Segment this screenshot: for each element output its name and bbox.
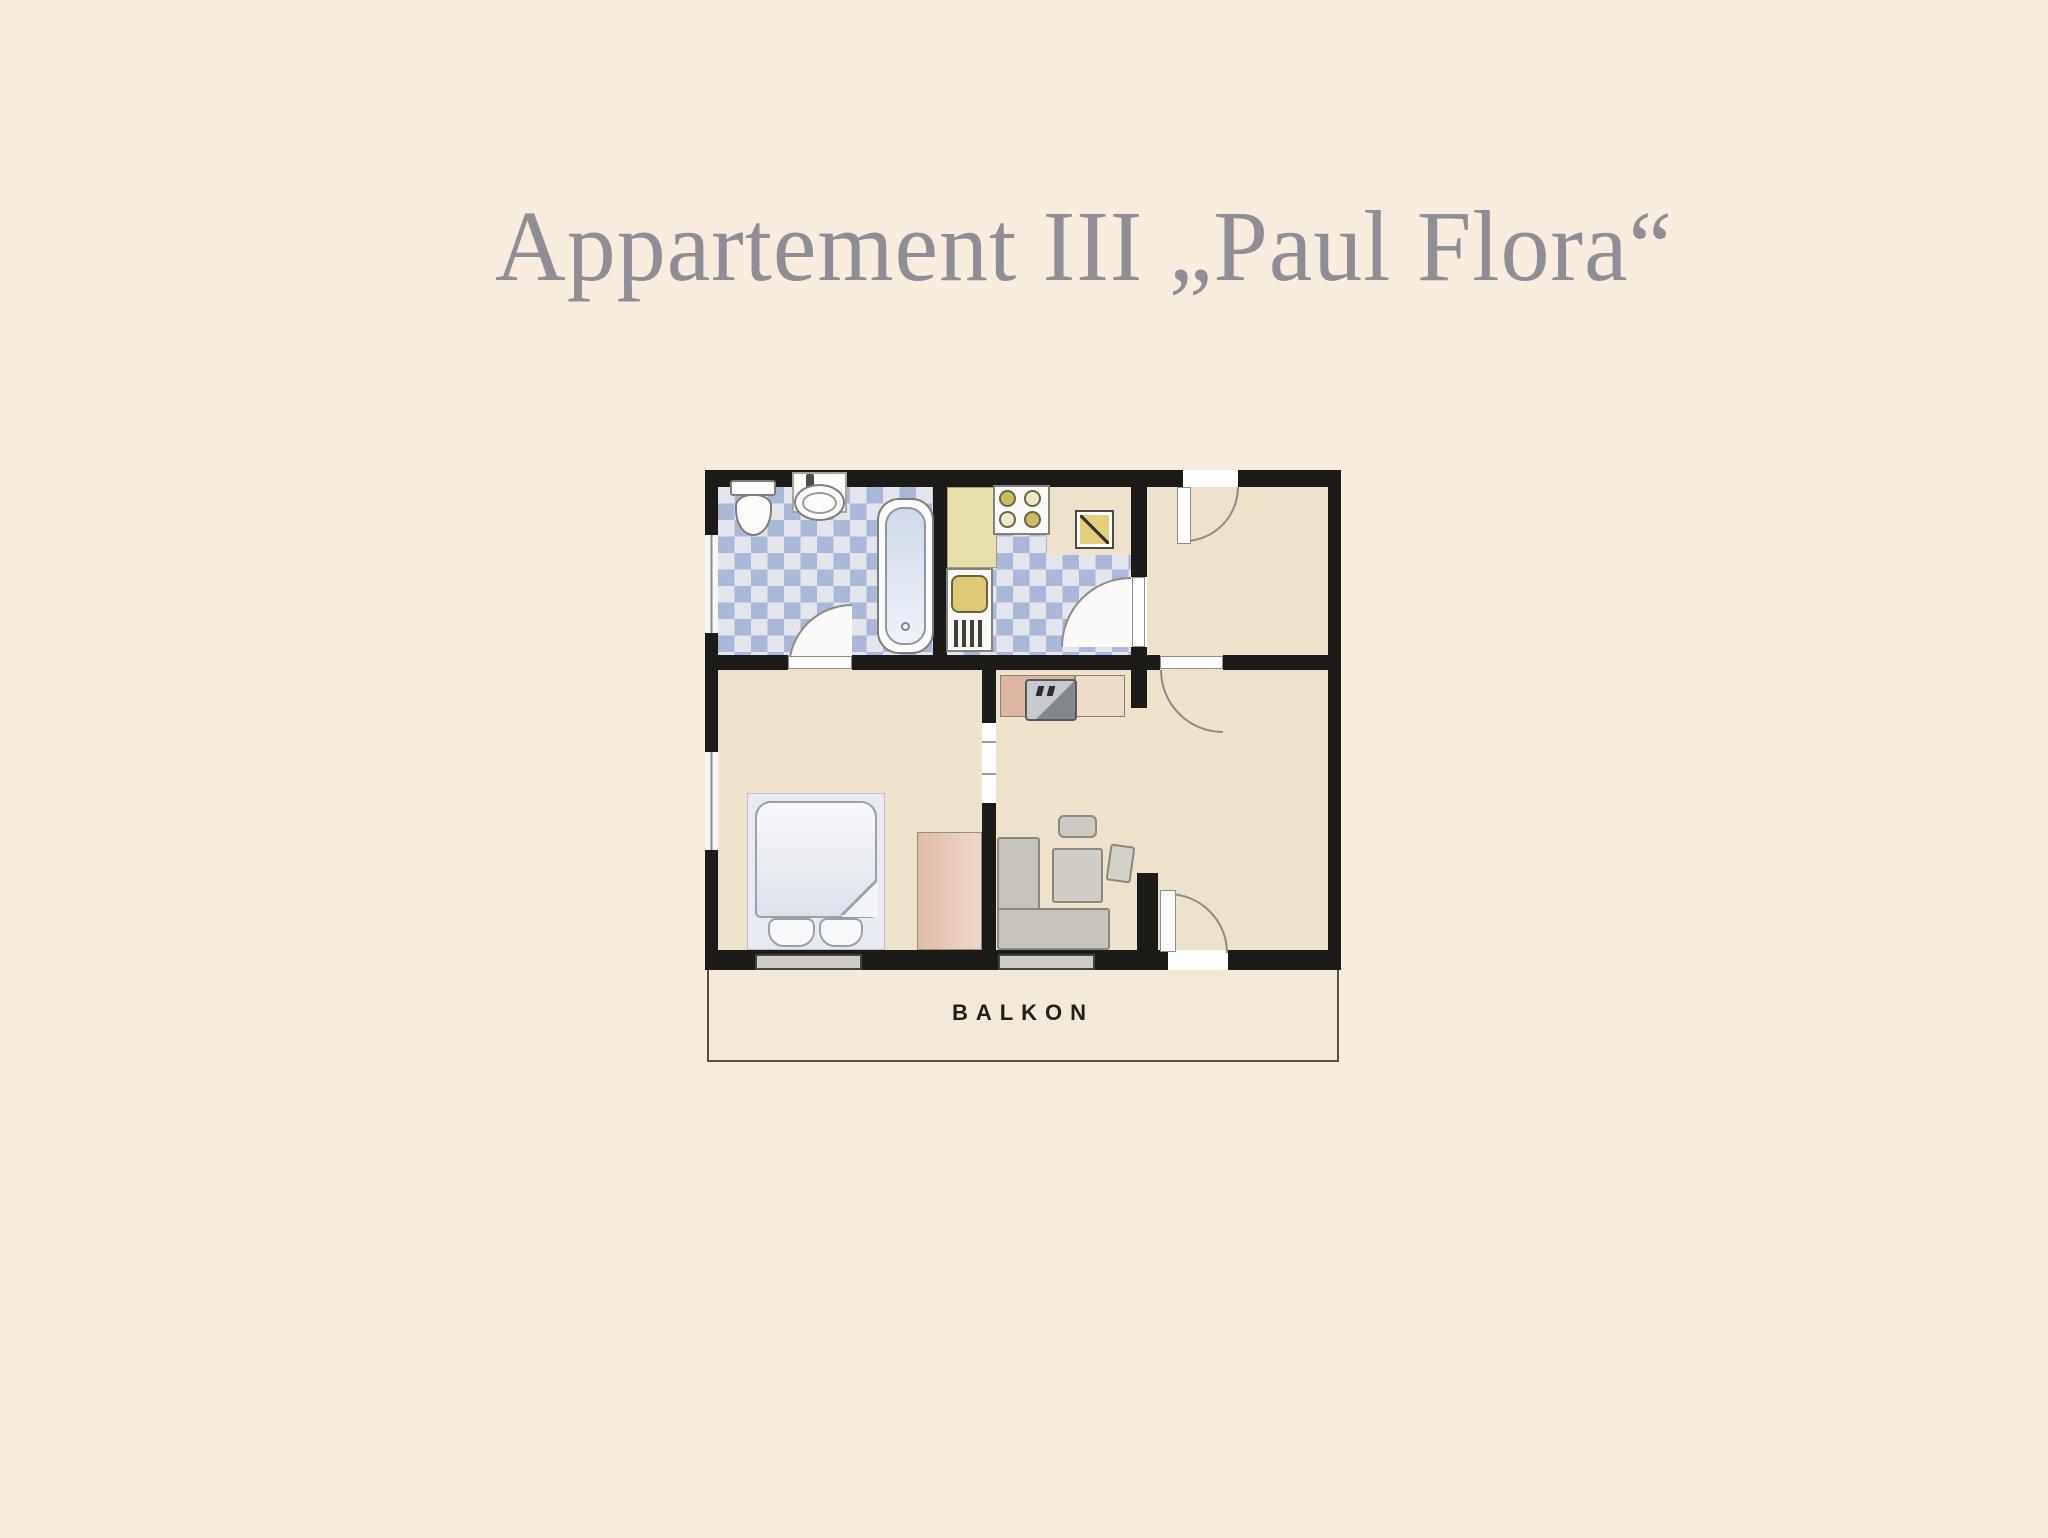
stove-burner	[999, 511, 1016, 528]
bathtub-drain	[901, 622, 910, 631]
pillow-icon	[819, 918, 863, 947]
outer-wall-right	[1328, 470, 1341, 970]
pillow-icon	[768, 918, 815, 947]
kitchen-counter	[947, 487, 997, 568]
balcony: BALKON	[707, 970, 1339, 1062]
wall-bedroom-living-upper	[982, 670, 996, 723]
stool-icon	[1058, 815, 1097, 838]
bedroom-living-opening-tick	[982, 741, 996, 743]
chair-icon	[1106, 843, 1136, 883]
living-door-leaf	[1160, 656, 1223, 669]
wall-mid-right	[1223, 655, 1328, 670]
balcony-door-opening	[1168, 950, 1228, 970]
wall-pier-balcony-door	[1137, 873, 1158, 950]
bedroom-side-window	[705, 752, 718, 850]
living-door-arc	[1160, 670, 1223, 733]
living-balcony-window	[998, 954, 1095, 970]
wall-bathroom-kitchen	[933, 487, 947, 670]
wall-kitchen-hall-upper	[1131, 487, 1147, 577]
blanket-fold	[842, 881, 878, 917]
sink-basin	[802, 492, 837, 514]
bedroom-living-opening	[982, 723, 996, 803]
kitchen-table-icon	[1077, 512, 1112, 547]
balcony-door-arc	[1168, 893, 1228, 953]
kitchen-door-leaf	[1132, 577, 1145, 647]
entrance-door-leaf	[1177, 487, 1191, 544]
wall-mid-center	[852, 655, 1160, 670]
bathroom-door-leaf	[788, 656, 852, 669]
kitchen-sink-basin	[951, 575, 988, 613]
kitchen-drainer	[954, 620, 985, 647]
bedroom-living-opening-tick	[982, 773, 996, 775]
sofa-icon	[997, 908, 1110, 950]
stove-burner	[1024, 511, 1041, 528]
stove-burner	[1024, 490, 1041, 507]
coffee-table-icon	[1052, 848, 1103, 903]
tv-sideboard-shelf	[1075, 675, 1125, 717]
floorplan	[705, 470, 1341, 970]
stove-burner	[999, 490, 1016, 507]
page: { "page": { "title": "Appartement III „P…	[0, 0, 2048, 1538]
wall-bedroom-living-lower	[982, 803, 996, 950]
page-title: Appartement III „Paul Flora“	[91, 188, 2048, 304]
wall-kitchen-hall-lower	[1131, 647, 1147, 708]
wardrobe-icon	[917, 832, 982, 950]
bathroom-window	[705, 535, 718, 633]
wall-mid-left	[718, 655, 788, 670]
entrance-opening	[1183, 470, 1238, 487]
entrance-door-arc	[1184, 487, 1239, 542]
balcony-door-leaf	[1160, 890, 1176, 952]
bedroom-balcony-window	[755, 954, 862, 970]
balcony-label: BALKON	[952, 1000, 1094, 1026]
